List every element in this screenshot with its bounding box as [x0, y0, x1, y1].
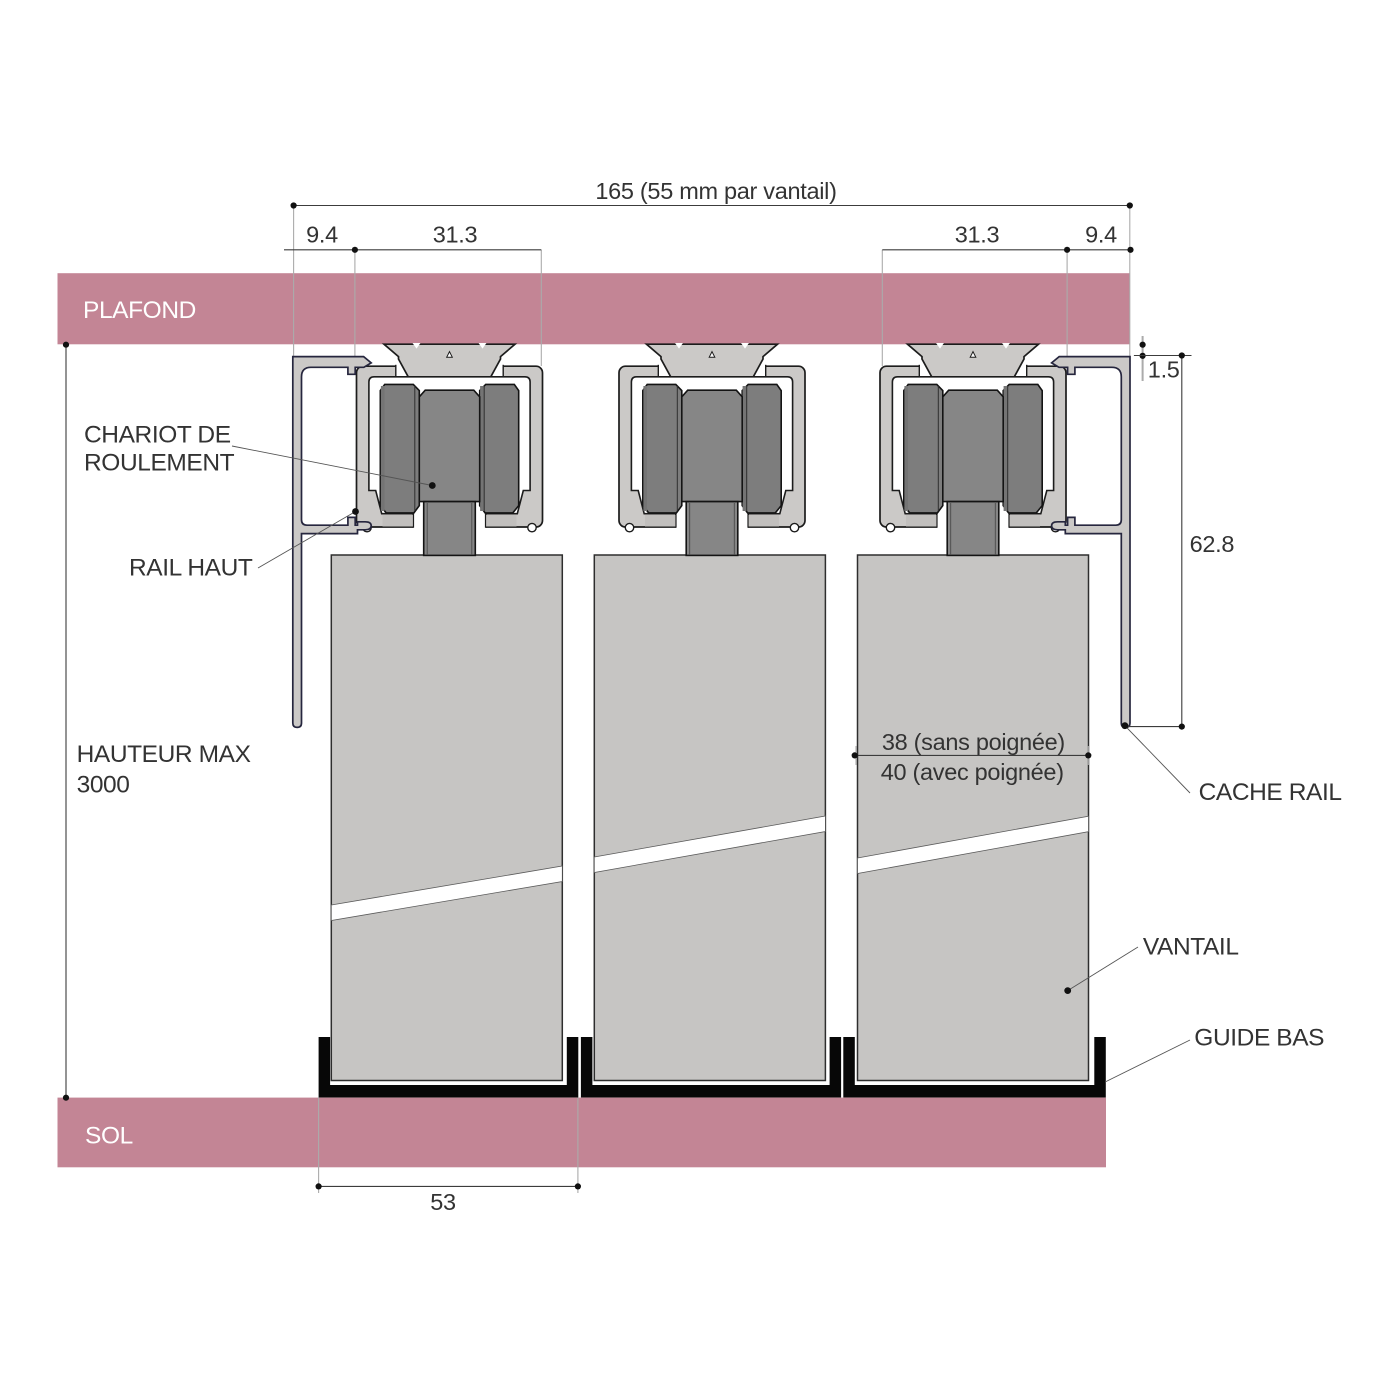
svg-text:31.3: 31.3 — [955, 222, 1000, 248]
svg-text:PLAFOND: PLAFOND — [83, 297, 196, 324]
svg-text:3000: 3000 — [77, 771, 130, 798]
svg-text:CHARIOT DE: CHARIOT DE — [84, 422, 231, 449]
svg-text:62.8: 62.8 — [1190, 531, 1235, 557]
svg-text:9.4: 9.4 — [1085, 222, 1117, 248]
svg-text:HAUTEUR MAX: HAUTEUR MAX — [77, 741, 251, 768]
svg-text:165 (55 mm par vantail): 165 (55 mm par vantail) — [595, 178, 836, 204]
svg-text:CACHE RAIL: CACHE RAIL — [1199, 779, 1342, 806]
svg-text:SOL: SOL — [85, 1123, 133, 1150]
svg-text:ROULEMENT: ROULEMENT — [84, 450, 235, 477]
svg-text:40 (avec poignée): 40 (avec poignée) — [881, 759, 1064, 785]
svg-text:53: 53 — [430, 1189, 456, 1215]
svg-text:1.5: 1.5 — [1148, 357, 1180, 383]
svg-text:31.3: 31.3 — [433, 222, 478, 248]
svg-text:9.4: 9.4 — [306, 222, 338, 248]
svg-text:VANTAIL: VANTAIL — [1143, 933, 1239, 960]
svg-text:38 (sans poignée): 38 (sans poignée) — [882, 729, 1065, 755]
svg-text:GUIDE BAS: GUIDE BAS — [1194, 1025, 1324, 1052]
svg-text:RAIL HAUT: RAIL HAUT — [129, 555, 253, 582]
